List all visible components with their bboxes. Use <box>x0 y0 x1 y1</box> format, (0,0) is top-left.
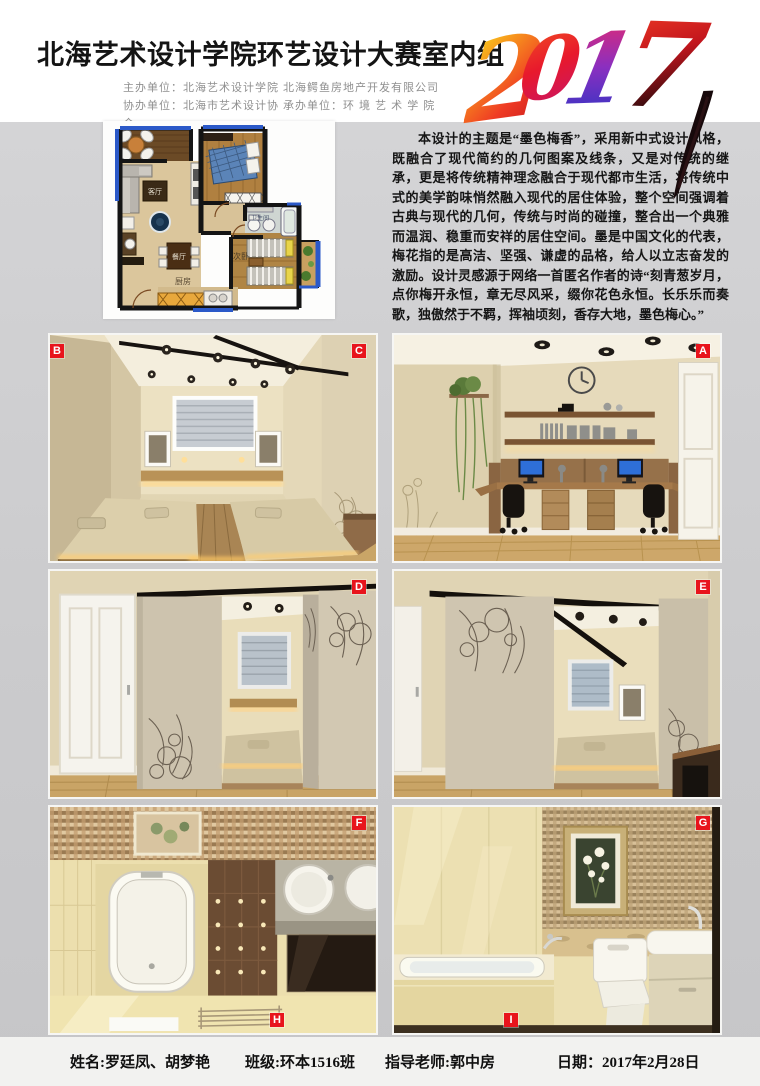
render-sliding-doors-2: E <box>392 569 722 799</box>
sliding-panel-right <box>319 591 376 789</box>
render-label-a: A <box>696 344 710 358</box>
year-2017-graphic: 2017 <box>465 5 760 215</box>
render-tatami-bedroom: B C <box>48 333 378 563</box>
render-gallery: B C <box>48 333 722 1035</box>
footer-teacher: 指导老师:郭中房 <box>385 1051 495 1072</box>
sliding-doors-2-scene <box>394 571 720 797</box>
page-title: 北海艺术设计学院环艺设计大赛室内组 <box>37 33 505 72</box>
dark-mirror <box>287 935 376 992</box>
brush-stroke-tail <box>655 90 739 203</box>
render-label-b: B <box>50 344 64 358</box>
wardrobe <box>225 193 267 203</box>
interior-opening <box>222 597 303 790</box>
brown-tile-wall <box>208 860 277 996</box>
render-label-f: F <box>352 816 366 830</box>
dining-label: 餐厅 <box>172 252 186 261</box>
bathtub <box>109 872 194 992</box>
dark-floor <box>394 1025 720 1033</box>
round-table <box>150 212 170 232</box>
footer-date: 日期：2017年2月28日 <box>557 1051 700 1072</box>
bath-mat <box>109 1017 178 1031</box>
render-label-h: H <box>270 1013 284 1027</box>
white-door <box>60 595 135 774</box>
organizer-row: 主办单位：北海艺术设计学院 北海鳄鱼房地产开发有限公司 <box>123 79 439 97</box>
study-room-scene <box>394 335 720 561</box>
organizer-row: 协办单位：北海市艺术设计协会 承办单位：环 境 艺 术 学 院 <box>123 97 439 115</box>
tatami-bedroom-scene <box>50 335 376 561</box>
bathroom-top-scene <box>50 807 376 1033</box>
white-door <box>394 606 422 771</box>
wall-lamp <box>239 457 245 463</box>
door <box>679 363 719 540</box>
wall-lamp <box>181 457 187 463</box>
footer-name: 姓名:罗廷凤、胡梦艳 <box>70 1051 210 1072</box>
bathroom-side-scene <box>394 807 720 1033</box>
bathtub <box>281 207 298 236</box>
door-handle <box>127 685 130 695</box>
render-label-c: C <box>352 344 366 358</box>
sliding-doors-scene <box>50 571 376 797</box>
wood-floor <box>394 535 720 561</box>
framed-flower-art <box>564 827 627 915</box>
render-label-i: I <box>504 1013 518 1027</box>
organizer-co-host: 协办单位：北海市艺术设计协会 <box>123 97 283 115</box>
living-label: 客厅 <box>148 187 162 196</box>
render-label-g: G <box>696 816 710 830</box>
floorplan-drawing: 客厅 餐厅 <box>103 121 335 319</box>
kitchen-label: 厨房 <box>175 276 191 286</box>
kitchen-counter <box>158 291 232 306</box>
organizer-block: 主办单位：北海艺术设计学院 北海鳄鱼房地产开发有限公司 协办单位：北海市艺术设计… <box>123 79 439 115</box>
render-study-room: A <box>392 333 722 563</box>
right-edge <box>712 807 720 1033</box>
render-label-e: E <box>696 580 710 594</box>
interior-opening <box>554 606 659 789</box>
footer: 姓名:罗廷凤、胡梦艳 班级:环本1516班 指导老师:郭中房 日期：2017年2… <box>0 1037 760 1086</box>
floorplan-panel: 客厅 餐厅 <box>103 121 335 319</box>
sink-counter <box>275 860 376 935</box>
sliding-panel-left <box>137 597 222 790</box>
organizer-host: 主办单位：北海艺术设计学院 <box>123 79 283 97</box>
render-sliding-doors: D <box>48 569 378 799</box>
window <box>172 396 257 451</box>
bathtub <box>394 954 554 1025</box>
dresser <box>203 133 233 141</box>
sliding-panel-left <box>445 597 554 790</box>
render-label-d: D <box>352 580 366 594</box>
footer-class: 班级:环本1516班 <box>245 1051 355 1072</box>
render-bathroom-side: G I <box>392 805 722 1035</box>
ceiling-art-panel <box>135 813 200 854</box>
organizer-undertaker: 承办单位：环 境 艺 术 学 院 <box>283 97 435 115</box>
bath-label: 卫生间 <box>251 214 269 222</box>
poster: 北海艺术设计学院环艺设计大赛室内组 主办单位：北海艺术设计学院 北海鳄鱼房地产开… <box>0 0 760 1086</box>
mosaic-ceiling <box>50 807 376 860</box>
divider-panel <box>303 595 319 790</box>
glossy-floor <box>50 996 376 1033</box>
headboard-ledge <box>141 471 283 487</box>
render-bathroom-top: F H <box>48 805 378 1035</box>
second-label: 次卧 <box>233 251 249 261</box>
organizer-developer: 北海鳄鱼房地产开发有限公司 <box>283 79 439 97</box>
